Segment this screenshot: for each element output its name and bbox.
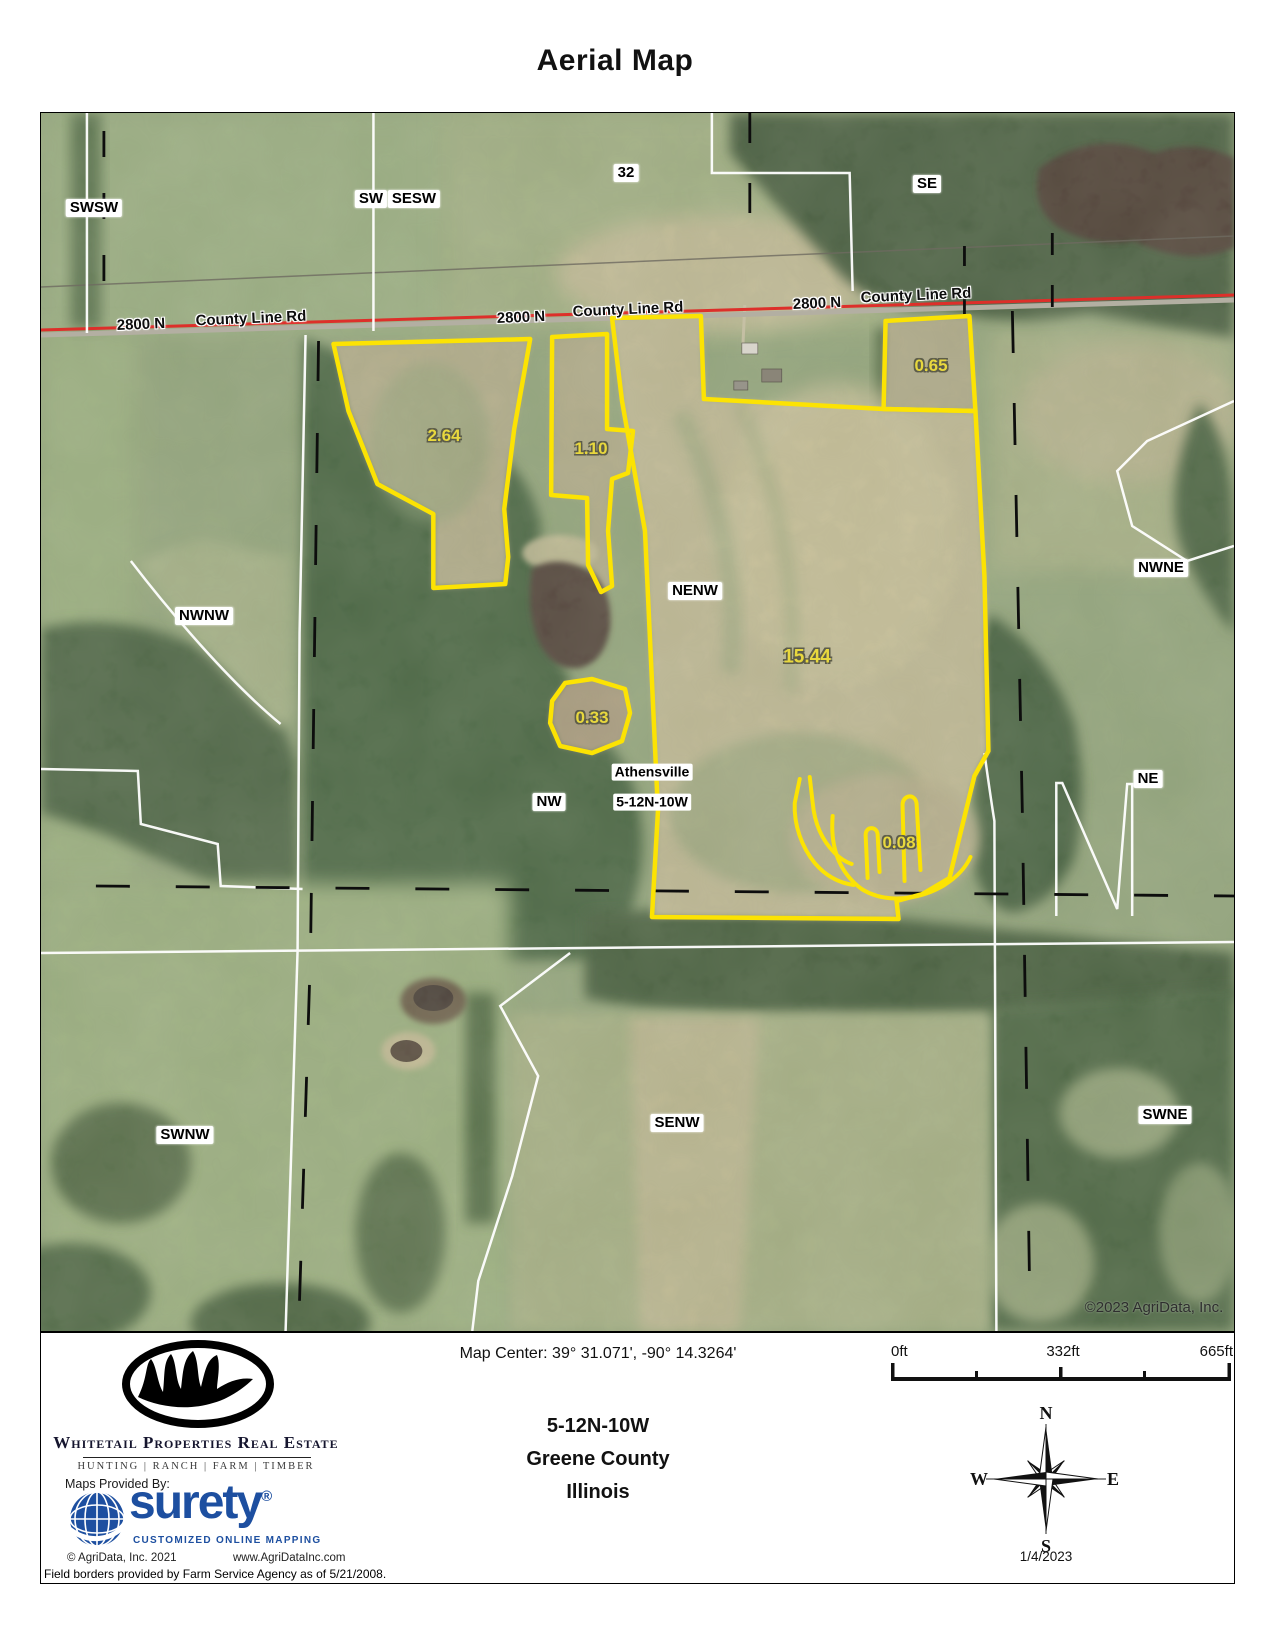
agridata-copyright: © AgriData, Inc. 2021 xyxy=(67,1552,176,1564)
map-label-5-12n-10w: 5-12N-10W xyxy=(613,794,691,811)
map-label-athensville: Athensville xyxy=(612,764,693,781)
compass-rose-icon: N S W E xyxy=(966,1399,1126,1559)
map-label-ne: NE xyxy=(1134,770,1163,788)
compass-north-label: N xyxy=(1040,1403,1053,1423)
map-label-1-10: 1.10 xyxy=(574,439,607,459)
map-label-swsw: SWSW xyxy=(66,199,122,217)
surety-registered-mark: ® xyxy=(261,1488,272,1505)
surety-tagline: CUSTOMIZED ONLINE MAPPING xyxy=(133,1535,321,1546)
compass-west-label: W xyxy=(970,1469,988,1489)
map-label-2800-n: 2800 N xyxy=(496,308,545,328)
map-label-32: 32 xyxy=(614,164,639,182)
map-label-0-08: 0.08 xyxy=(882,833,915,853)
map-label-2-64: 2.64 xyxy=(427,426,460,446)
map-label-2800-n: 2800 N xyxy=(792,294,841,314)
scale-label-end: 665ft xyxy=(1200,1343,1234,1360)
brand-divider xyxy=(83,1457,311,1458)
compass-east-label: E xyxy=(1107,1469,1119,1489)
footer: Whitetail Properties Real Estate HUNTING… xyxy=(41,1333,1234,1583)
whitetail-antler-logo xyxy=(113,1337,283,1431)
map-label-swnw: SWNW xyxy=(156,1126,213,1144)
agridata-url: www.AgriDataInc.com xyxy=(233,1552,345,1564)
aerial-map: SWSWSWSESW32SENWNWNENWNWNENWNESWNWSENWSW… xyxy=(41,113,1234,1333)
map-label-0-33: 0.33 xyxy=(575,708,608,728)
map-center-coordinates: Map Center: 39° 31.071', -90° 14.3264' xyxy=(341,1345,855,1363)
map-date: 1/4/2023 xyxy=(986,1549,1106,1564)
township-range-section: 5-12N-10W xyxy=(341,1415,855,1438)
scale-label-start: 0ft xyxy=(891,1343,909,1360)
surety-logo: surety® xyxy=(129,1479,272,1527)
map-label-sesw: SESW xyxy=(388,190,440,208)
scale-bar: 0ft 332ft 665ft xyxy=(887,1339,1239,1391)
field-borders-note: Field borders provided by Farm Service A… xyxy=(44,1567,386,1581)
scale-label-middle: 332ft xyxy=(1046,1343,1080,1360)
map-label-nwnw: NWNW xyxy=(175,607,233,625)
page-title: Aerial Map xyxy=(0,44,1230,78)
compass-cardinal-points xyxy=(994,1427,1098,1531)
map-label-2800-n: 2800 N xyxy=(116,315,165,335)
brand-tagline: HUNTING | RANCH | FARM | TIMBER xyxy=(41,1461,351,1472)
map-label-15-44: 15.44 xyxy=(783,647,831,670)
map-label-sw: SW xyxy=(355,190,387,208)
map-label-senw: SENW xyxy=(651,1114,704,1132)
state-name: Illinois xyxy=(341,1481,855,1504)
county-name: Greene County xyxy=(341,1448,855,1471)
surety-wordmark: surety xyxy=(129,1476,261,1529)
map-label-nenw: NENW xyxy=(668,582,722,600)
map-label-0-65: 0.65 xyxy=(914,356,947,376)
texture-overlay-light xyxy=(41,113,1234,1331)
aerial-imagery xyxy=(41,113,1234,1331)
surety-globe-icon xyxy=(67,1489,127,1549)
map-label-se: SE xyxy=(913,175,941,193)
document-frame: SWSWSWSESW32SENWNWNENWNWNENWNESWNWSENWSW… xyxy=(40,112,1235,1584)
map-label-2023-agridata-inc: ©2023 AgriData, Inc. xyxy=(1085,1299,1224,1317)
map-label-nw: NW xyxy=(533,793,566,811)
aerial-map-report: Aerial Map xyxy=(0,0,1275,1650)
map-label-nwne: NWNE xyxy=(1134,559,1188,577)
brand-name: Whitetail Properties Real Estate xyxy=(41,1433,351,1453)
map-label-swne: SWNE xyxy=(1139,1106,1192,1124)
